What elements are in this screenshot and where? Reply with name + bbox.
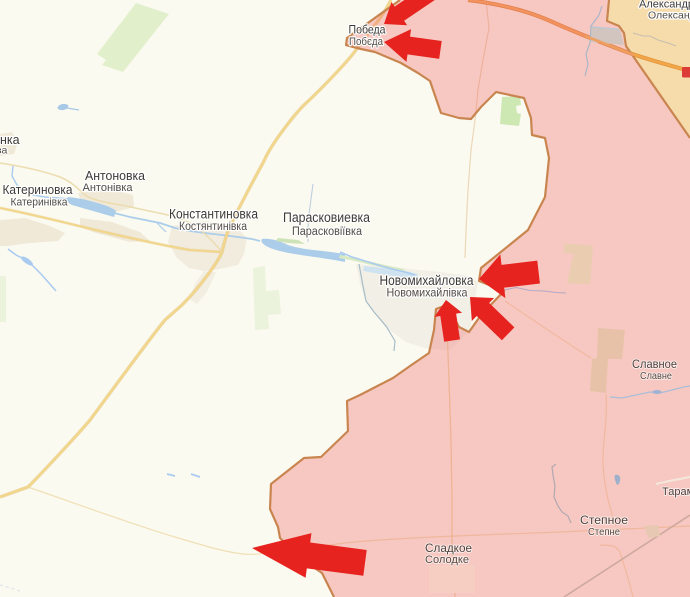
svg-text:Парасковиевка: Парасковиевка <box>283 210 370 225</box>
svg-text:Степне: Степне <box>588 526 620 538</box>
svg-text:Славне: Славне <box>640 370 672 382</box>
svg-text:Сладкое: Сладкое <box>425 541 472 555</box>
svg-text:Катериновка: Катериновка <box>3 183 73 197</box>
svg-text:Антонівка: Антонівка <box>83 182 134 194</box>
svg-text:Новомихайлівка: Новомихайлівка <box>387 286 468 300</box>
svg-text:Тарам: Тарам <box>662 486 690 498</box>
svg-text:Катеринівка: Катеринівка <box>11 197 69 209</box>
svg-text:Побєда: Побєда <box>349 36 384 48</box>
svg-text:Константиновка: Константиновка <box>169 207 258 222</box>
svg-text:Степное: Степное <box>580 513 628 527</box>
svg-text:Парасковіївка: Парасковіївка <box>292 226 363 238</box>
svg-text:Солодке: Солодке <box>425 554 469 566</box>
svg-text:Олександр: Олександр <box>648 10 690 22</box>
svg-text:Победа: Победа <box>349 23 386 37</box>
svg-text:Антоновка: Антоновка <box>85 169 145 183</box>
svg-text:Славное: Славное <box>632 357 677 371</box>
svg-text:ва: ва <box>0 145 7 157</box>
svg-text:Костянтинівка: Костянтинівка <box>179 221 248 233</box>
